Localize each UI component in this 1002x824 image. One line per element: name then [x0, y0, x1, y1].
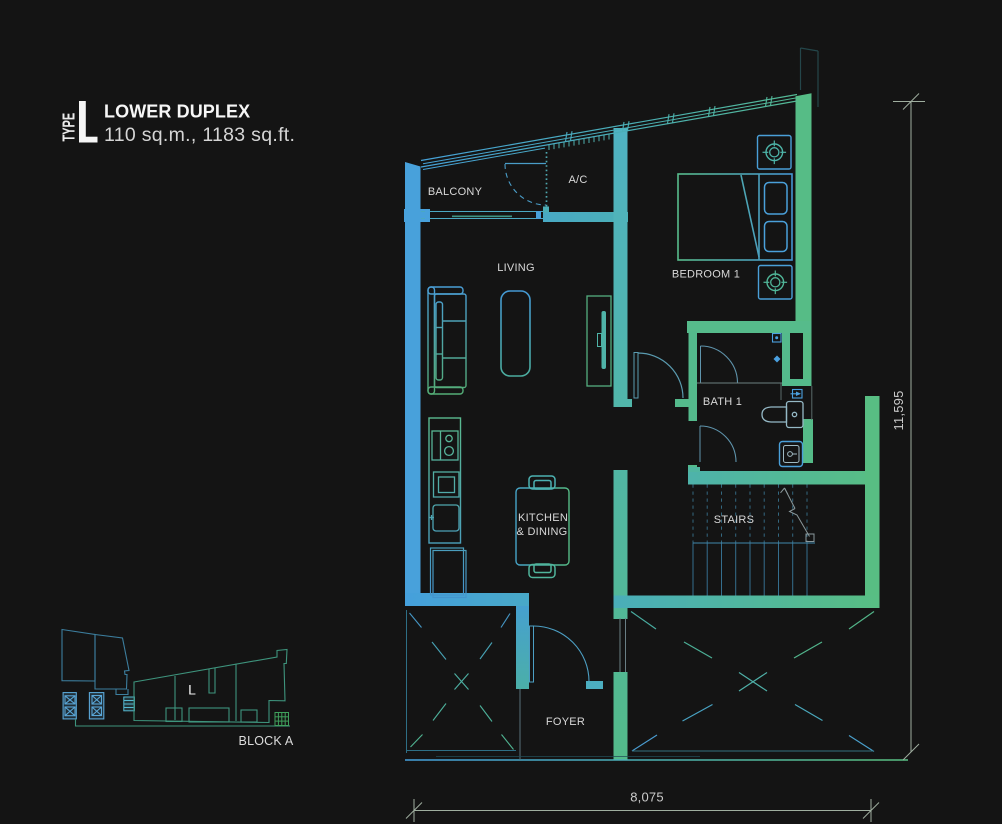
svg-text:KITCHEN: KITCHEN: [518, 512, 568, 524]
svg-text:BLOCK A: BLOCK A: [239, 734, 294, 748]
svg-text:BEDROOM 1: BEDROOM 1: [672, 269, 740, 281]
svg-text:L: L: [188, 682, 196, 698]
svg-text:BATH 1: BATH 1: [703, 396, 742, 408]
svg-text:A/C: A/C: [568, 174, 587, 186]
svg-text:BALCONY: BALCONY: [428, 186, 483, 198]
svg-text:LOWER DUPLEX: LOWER DUPLEX: [104, 102, 250, 122]
svg-text:FOYER: FOYER: [546, 716, 585, 728]
svg-text:& DINING: & DINING: [517, 526, 568, 538]
svg-text:110 sq.m., 1183 sq.ft.: 110 sq.m., 1183 sq.ft.: [104, 124, 295, 146]
svg-text:8,075: 8,075: [630, 790, 664, 805]
svg-text:STAIRS: STAIRS: [714, 514, 754, 526]
svg-text:TYPE: TYPE: [60, 113, 79, 142]
svg-text:11,595: 11,595: [891, 391, 906, 431]
svg-text:LIVING: LIVING: [497, 262, 535, 274]
